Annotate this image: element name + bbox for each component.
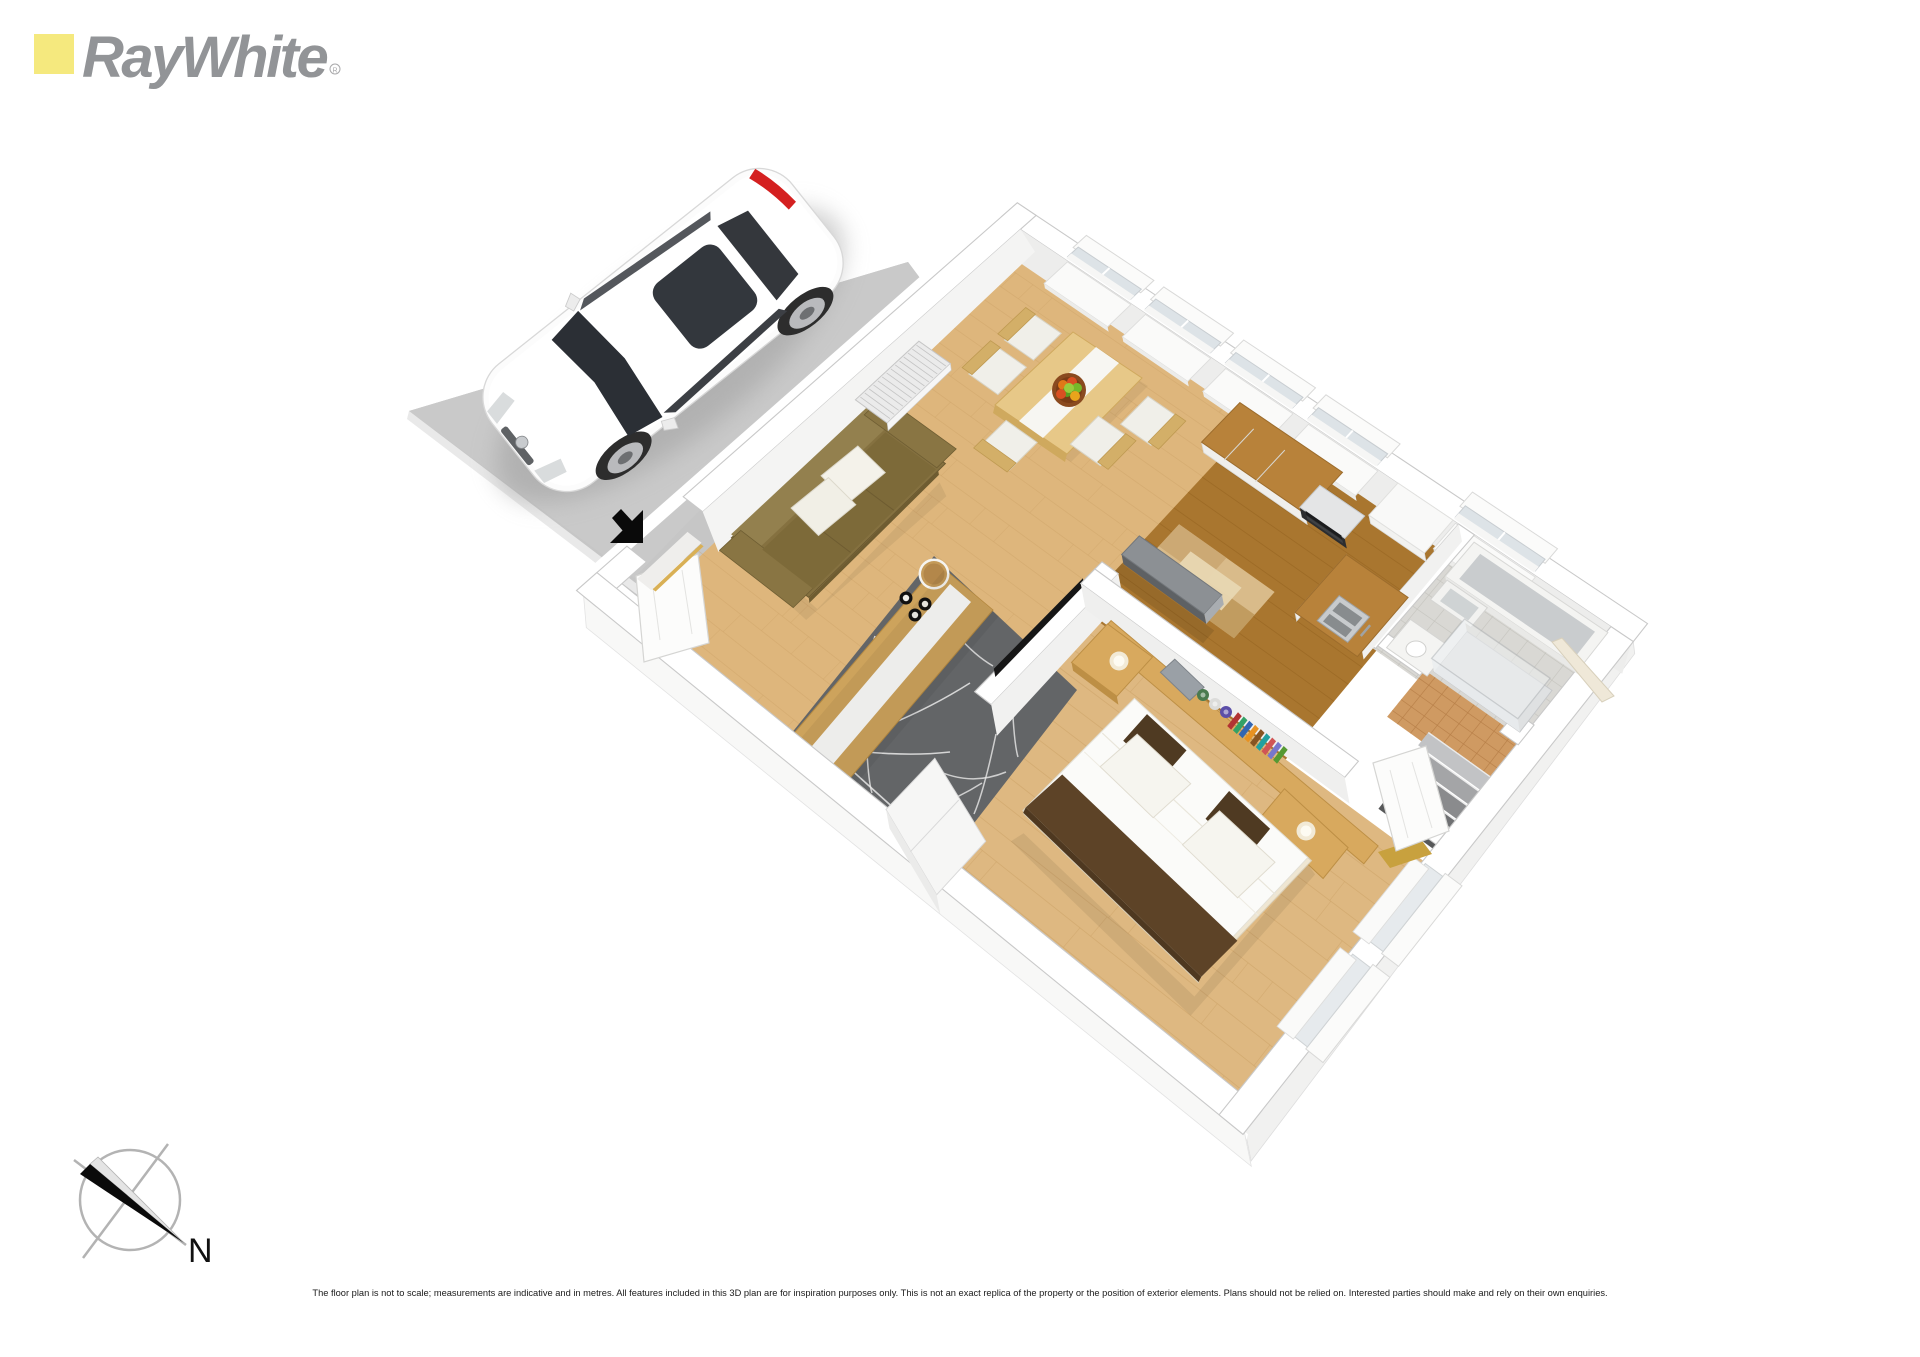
svg-text:N: N	[188, 1232, 213, 1270]
svg-text:The floor plan is not to scale: The floor plan is not to scale; measurem…	[312, 1288, 1607, 1298]
svg-text:R: R	[332, 68, 337, 75]
svg-text:RayWhite: RayWhite	[82, 25, 328, 90]
